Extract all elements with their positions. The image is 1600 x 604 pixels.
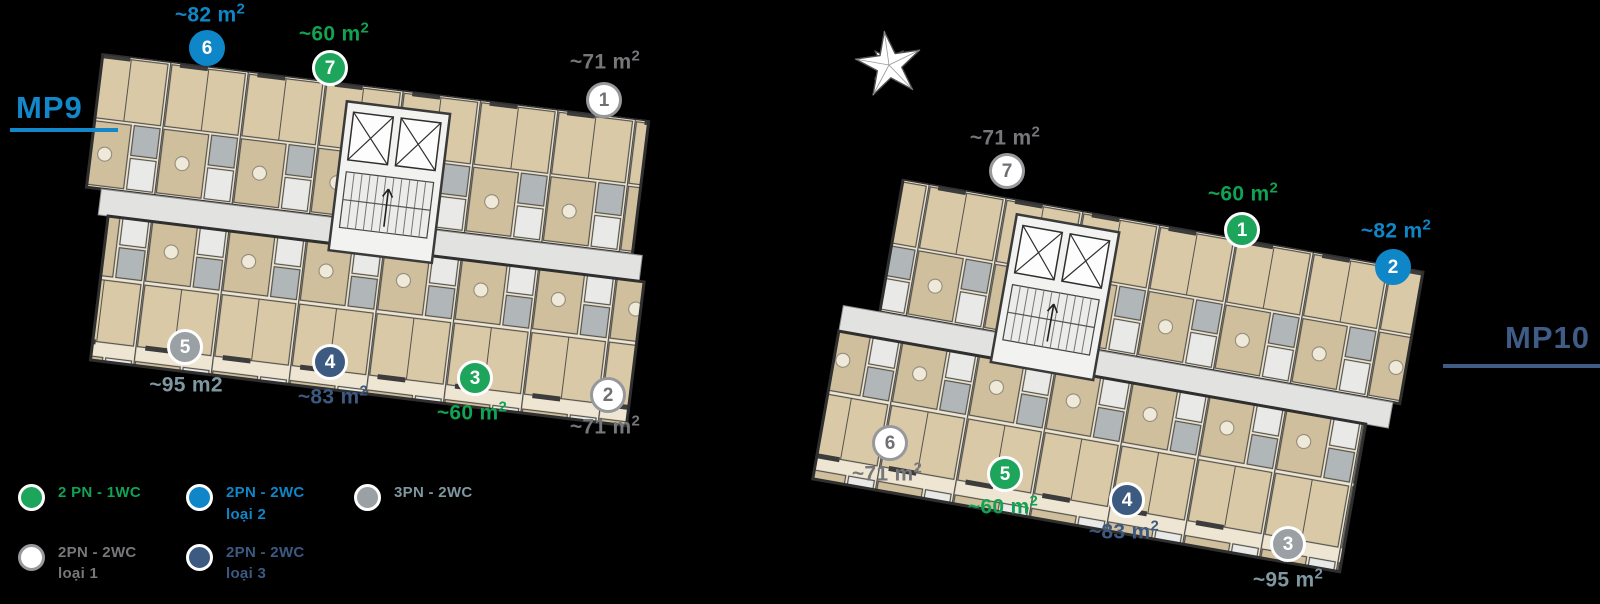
unit-marker-mp10-4: 4 [1109, 482, 1145, 518]
unit-number: 4 [1122, 491, 1133, 510]
area-value: ~71 m [570, 51, 632, 74]
unit-area-label-mp9-3: ~60 m2 [437, 403, 507, 424]
legend-item-blue: 2PN - 2WCloại 2 [186, 482, 354, 526]
legend-label: 2 PN - 1WC [58, 482, 141, 504]
unit-area-label-mp9-6: ~82 m2 [175, 5, 245, 26]
unit-number: 1 [599, 91, 610, 110]
area-superscript: 2 [1029, 493, 1038, 510]
unit-marker-mp10-5: 5 [987, 456, 1023, 492]
area-superscript: 2 [498, 399, 507, 416]
legend-label: 2PN - 2WC [58, 542, 137, 564]
area-value: ~71 m [570, 416, 632, 439]
unit-marker-mp10-2: 2 [1375, 249, 1411, 285]
area-superscript: 2 [359, 383, 368, 400]
unit-area-label-mp10-5: ~60 m2 [968, 497, 1038, 518]
unit-area-label-mp9-5: ~95 m2 [149, 375, 223, 396]
area-superscript: 2 [1422, 217, 1431, 234]
legend-color-dot-white [18, 544, 45, 571]
area-superscript: 2 [631, 48, 640, 65]
building-title-underline-mp9 [10, 128, 118, 132]
legend-label: 2PN - 2WC [226, 482, 305, 504]
legend-sublabel: loại 1 [58, 563, 137, 585]
area-superscript: 2 [236, 1, 245, 18]
legend-label: 3PN - 2WC [394, 482, 473, 504]
unit-marker-mp9-1: 1 [586, 82, 622, 118]
area-value: ~95 m2 [149, 374, 223, 397]
unit-marker-mp10-7: 7 [989, 153, 1025, 189]
area-superscript: 2 [913, 460, 922, 477]
legend-item-navy: 2PN - 2WCloại 3 [186, 542, 354, 586]
area-superscript: 2 [360, 20, 369, 37]
unit-number: 3 [470, 369, 481, 388]
unit-marker-mp9-5: 5 [167, 329, 203, 365]
unit-number: 6 [202, 39, 213, 58]
unit-area-label-mp9-2: ~71 m2 [570, 417, 640, 438]
unit-number: 3 [1283, 535, 1294, 554]
unit-area-label-mp9-4: ~83 m2 [298, 387, 368, 408]
unit-marker-mp10-6: 6 [872, 425, 908, 461]
unit-number: 2 [1388, 258, 1399, 277]
area-superscript: 2 [631, 413, 640, 430]
area-value: ~83 m [1089, 521, 1151, 544]
unit-marker-mp9-4: 4 [312, 344, 348, 380]
area-superscript: 2 [1031, 124, 1040, 141]
unit-number: 5 [180, 338, 191, 357]
building-title-mp9: MP9 [16, 90, 83, 126]
unit-area-label-mp9-1: ~71 m2 [570, 52, 640, 73]
unit-number: 7 [325, 59, 336, 78]
legend-item-slate: 3PN - 2WC [354, 482, 514, 526]
area-value: ~60 m [968, 496, 1030, 519]
unit-area-label-mp10-7: ~71 m2 [970, 128, 1040, 149]
floorplan-infographic: MP9 MP10 6~82 m27~60 m21~71 m25~95 m24~8… [0, 0, 1600, 604]
unit-area-label-mp10-6: ~71 m2 [852, 464, 922, 485]
unit-number: 5 [1000, 465, 1011, 484]
area-value: ~82 m [175, 4, 237, 27]
building-title-mp10: MP10 [1505, 320, 1590, 356]
legend-item-white: 2PN - 2WCloại 1 [18, 542, 186, 586]
compass-star-icon [854, 28, 926, 107]
area-superscript: 2 [1314, 566, 1323, 583]
legend: 2 PN - 1WC2PN - 2WCloại 23PN - 2WC2PN - … [18, 482, 514, 585]
area-value: ~60 m [437, 402, 499, 425]
legend-color-dot-navy [186, 544, 213, 571]
unit-area-label-mp10-1: ~60 m2 [1208, 184, 1278, 205]
unit-marker-mp9-7: 7 [312, 50, 348, 86]
floorplan-mp9 [50, 52, 688, 473]
unit-area-label-mp9-7: ~60 m2 [299, 24, 369, 45]
unit-area-label-mp10-3: ~95 m2 [1253, 570, 1323, 591]
area-superscript: 2 [1150, 518, 1159, 535]
legend-color-dot-blue [186, 484, 213, 511]
legend-sublabel: loại 2 [226, 504, 305, 526]
area-value: ~82 m [1361, 220, 1423, 243]
legend-item-green: 2 PN - 1WC [18, 482, 186, 526]
unit-area-label-mp10-2: ~82 m2 [1361, 221, 1431, 242]
area-value: ~83 m [298, 386, 360, 409]
area-value: ~71 m [852, 463, 914, 486]
area-value: ~71 m [970, 127, 1032, 150]
unit-number: 2 [603, 386, 614, 405]
legend-sublabel: loại 3 [226, 563, 305, 585]
unit-number: 6 [885, 434, 896, 453]
unit-marker-mp10-3: 3 [1270, 526, 1306, 562]
unit-number: 7 [1002, 162, 1013, 181]
legend-color-dot-green [18, 484, 45, 511]
unit-area-label-mp10-4: ~83 m2 [1089, 522, 1159, 543]
legend-label: 2PN - 2WC [226, 542, 305, 564]
unit-number: 1 [1237, 221, 1248, 240]
unit-marker-mp9-2: 2 [590, 377, 626, 413]
legend-color-dot-slate [354, 484, 381, 511]
building-title-underline-mp10 [1443, 364, 1600, 368]
unit-number: 4 [325, 353, 336, 372]
area-value: ~60 m [299, 23, 361, 46]
area-superscript: 2 [1269, 180, 1278, 197]
area-value: ~60 m [1208, 183, 1270, 206]
unit-marker-mp9-3: 3 [457, 360, 493, 396]
unit-marker-mp9-6: 6 [189, 30, 225, 66]
area-value: ~95 m [1253, 569, 1315, 592]
unit-marker-mp10-1: 1 [1224, 212, 1260, 248]
